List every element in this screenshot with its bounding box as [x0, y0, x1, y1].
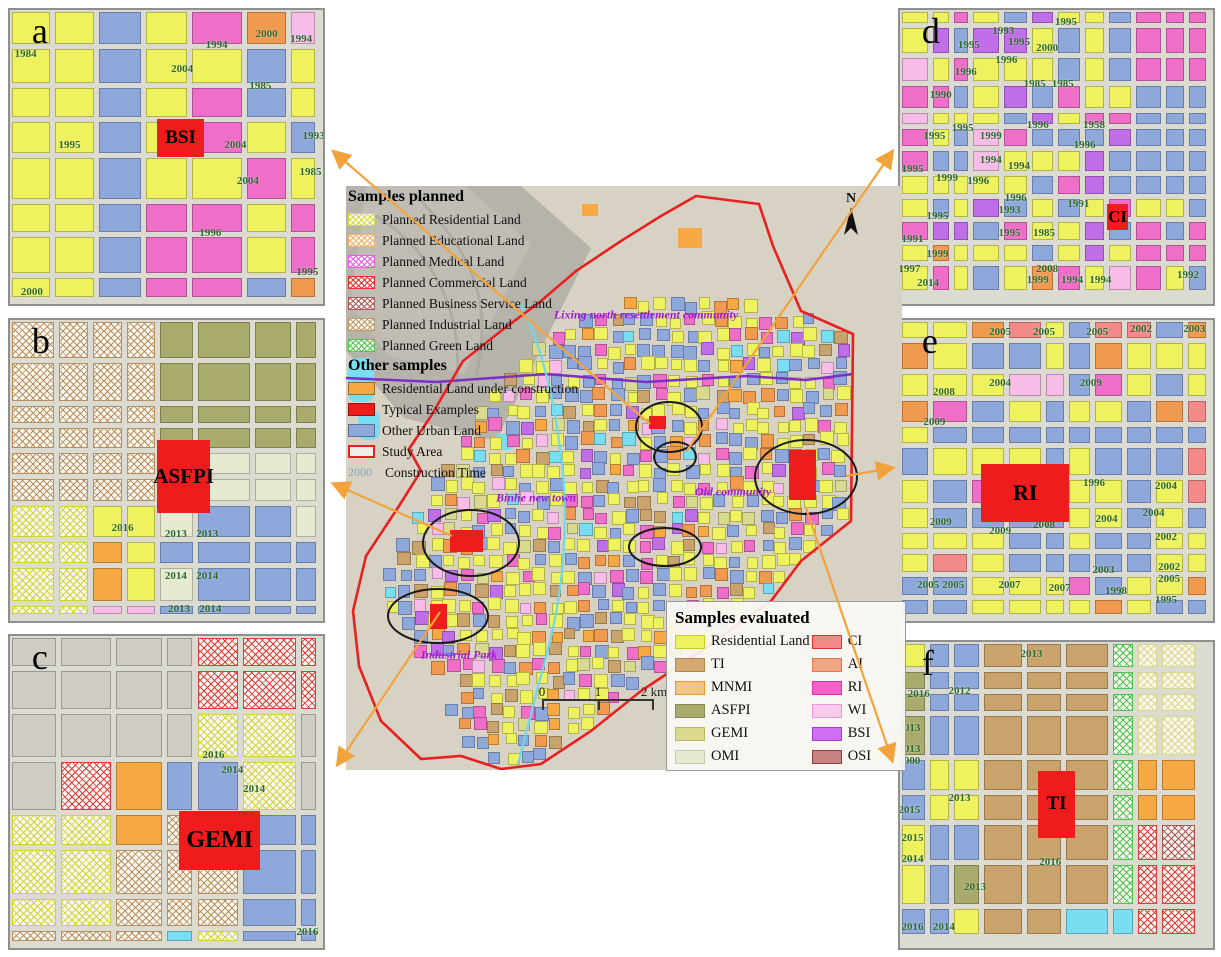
panel-letter: e	[922, 323, 938, 359]
construction-year-label: 2005	[917, 579, 939, 591]
land-parcel	[99, 122, 141, 152]
land-parcel	[1095, 427, 1122, 443]
land-parcel	[1138, 694, 1157, 711]
land-parcel	[12, 237, 50, 273]
construction-year-label: 1996	[1005, 192, 1027, 204]
highlight-ellipse	[629, 528, 701, 566]
land-parcel	[1166, 58, 1183, 81]
land-parcel	[1009, 343, 1041, 369]
land-parcel	[933, 222, 949, 240]
land-parcel	[127, 406, 155, 423]
land-parcel	[902, 58, 928, 81]
land-parcel	[99, 12, 141, 44]
construction-year-label: 2004	[237, 175, 259, 187]
land-parcel	[192, 49, 242, 83]
land-parcel	[1027, 909, 1061, 934]
land-parcel	[99, 88, 141, 118]
construction-year-label: 1994	[980, 154, 1002, 166]
construction-year-label: 2016	[296, 926, 318, 938]
land-parcel	[167, 638, 193, 666]
land-parcel	[1136, 199, 1161, 217]
land-parcel	[902, 374, 928, 396]
land-parcel	[99, 49, 141, 83]
land-parcel	[1138, 644, 1157, 667]
land-parcel	[1189, 28, 1206, 53]
land-parcel	[99, 158, 141, 199]
construction-year-label: 1994	[290, 33, 312, 45]
land-parcel	[12, 506, 54, 537]
land-parcel	[1166, 129, 1183, 146]
land-parcel	[1113, 694, 1133, 711]
construction-year-label: 2014	[917, 277, 939, 289]
legend-label: OMI	[711, 748, 739, 765]
land-parcel	[198, 638, 238, 666]
land-parcel	[1162, 760, 1195, 790]
land-parcel	[1156, 322, 1183, 338]
land-parcel	[902, 480, 928, 503]
land-parcel	[1069, 401, 1090, 422]
north-arrow: N	[838, 192, 864, 243]
typical-example-marker: TI	[1038, 771, 1076, 838]
land-parcel	[1032, 12, 1053, 23]
construction-year-label: 1995	[952, 122, 974, 134]
land-parcel	[972, 427, 1003, 443]
construction-year-label: 2013	[964, 881, 986, 893]
land-parcel	[61, 815, 111, 845]
land-parcel	[1138, 825, 1157, 861]
detail-panel-d: 1995199319951995200019961996198519851990…	[898, 8, 1215, 306]
land-parcel	[954, 909, 979, 934]
land-parcel	[198, 406, 250, 423]
legend-swatch	[675, 681, 705, 695]
construction-year-label: 2004	[1096, 513, 1118, 525]
legend-item: Planned Residential Land	[348, 209, 608, 230]
legend-swatch	[348, 255, 375, 268]
construction-year-label: 2003	[1092, 564, 1114, 576]
land-parcel	[1046, 427, 1064, 443]
land-parcel	[1109, 176, 1132, 194]
legend-label: Study Area	[382, 444, 442, 460]
construction-year-label: 1985	[299, 166, 321, 178]
land-parcel	[1004, 113, 1027, 124]
land-parcel	[1136, 58, 1161, 81]
land-parcel	[1189, 199, 1206, 217]
legend-swatch	[812, 658, 842, 672]
scale-tick-label: 2 km	[641, 684, 667, 700]
land-parcel	[127, 428, 155, 448]
land-parcel	[1162, 644, 1195, 667]
land-parcel	[55, 12, 94, 44]
land-parcel	[198, 363, 250, 401]
land-parcel	[1136, 151, 1161, 171]
typical-example-label: ASFPI	[153, 464, 214, 489]
land-parcel	[93, 568, 122, 600]
scale-bar: 012 km	[542, 684, 654, 711]
construction-year-label: 2013	[1020, 648, 1042, 660]
land-parcel	[902, 199, 928, 217]
land-parcel	[59, 542, 88, 563]
land-parcel	[127, 453, 155, 474]
land-parcel	[1113, 716, 1133, 754]
construction-year-label: 1999	[980, 130, 1002, 142]
legend-label: Planned Business Service Land	[382, 296, 552, 312]
land-parcel	[127, 542, 155, 563]
land-parcel	[1085, 245, 1104, 261]
land-parcel	[933, 58, 949, 81]
scale-labels: 012 km	[542, 684, 654, 699]
construction-year-label: 2004	[171, 63, 193, 75]
land-parcel	[1095, 600, 1122, 614]
land-parcel	[1109, 12, 1132, 23]
land-parcel	[12, 363, 54, 401]
land-parcel	[1113, 909, 1133, 934]
land-parcel	[1027, 716, 1061, 754]
construction-year-label: 2012	[948, 685, 970, 697]
construction-year-label: 2013	[196, 528, 218, 540]
land-parcel	[59, 506, 88, 537]
land-parcel	[1046, 554, 1064, 572]
land-parcel	[1189, 58, 1206, 81]
legend-item: BSI	[812, 722, 897, 745]
land-parcel	[12, 542, 54, 563]
legend-planned-items: Planned Residential LandPlanned Educatio…	[348, 209, 608, 356]
construction-year-label: 1992	[1177, 269, 1199, 281]
legend-label: AI	[848, 656, 863, 673]
land-parcel	[1188, 448, 1206, 475]
land-parcel	[116, 815, 162, 845]
panel-letter: c	[32, 639, 48, 675]
land-parcel	[93, 428, 122, 448]
construction-year-label: 2014	[221, 764, 243, 776]
land-parcel	[1069, 554, 1090, 572]
land-parcel	[1009, 554, 1041, 572]
construction-year-label: 2009	[989, 525, 1011, 537]
land-parcel	[984, 825, 1022, 861]
land-parcel	[255, 506, 291, 537]
land-parcel	[296, 453, 316, 474]
land-parcel	[291, 158, 315, 199]
land-parcel	[59, 428, 88, 448]
land-parcel	[93, 542, 122, 563]
land-parcel	[902, 245, 928, 261]
land-parcel	[1058, 176, 1079, 194]
construction-year-label: 2014	[196, 570, 218, 582]
land-parcel	[1085, 86, 1104, 109]
legend-swatch	[812, 750, 842, 764]
legend-other-title: Other samples	[348, 357, 608, 375]
land-parcel	[933, 343, 967, 369]
land-parcel	[1156, 343, 1183, 369]
land-parcel	[247, 49, 286, 83]
land-parcel	[1188, 600, 1206, 614]
construction-year-label: 1994	[1008, 160, 1030, 172]
land-parcel	[1095, 401, 1122, 422]
north-arrow-icon	[841, 206, 861, 238]
construction-year-label: 2005	[1033, 326, 1055, 338]
construction-year-label: 2013	[168, 603, 190, 615]
land-parcel	[1166, 86, 1183, 109]
land-parcel	[291, 88, 315, 118]
land-parcel	[1162, 672, 1195, 689]
land-parcel	[12, 815, 56, 845]
construction-year-label: 1995	[1155, 594, 1177, 606]
land-parcel	[12, 931, 56, 941]
land-parcel	[12, 714, 56, 757]
legend-swatch	[348, 318, 375, 331]
land-parcel	[1058, 222, 1079, 240]
panel-letter: b	[32, 323, 50, 359]
land-parcel	[933, 151, 949, 171]
detail-panel-a: 1984200019941994200419851995200419931985…	[8, 8, 325, 306]
land-parcel	[1188, 480, 1206, 503]
land-parcel	[61, 714, 111, 757]
legend-planned-title: Samples planned	[348, 188, 608, 206]
land-parcel	[55, 204, 94, 233]
land-parcel	[1066, 909, 1107, 934]
construction-year-label: 2005	[1086, 326, 1108, 338]
land-parcel	[296, 406, 316, 423]
land-parcel	[1069, 577, 1090, 594]
land-parcel	[930, 825, 949, 861]
land-parcel	[1004, 245, 1027, 261]
land-parcel	[954, 245, 968, 261]
land-parcel	[160, 406, 193, 423]
land-parcel	[1156, 374, 1183, 396]
construction-year-label: 2000	[21, 286, 43, 298]
legend-item: Other Urban Land	[348, 420, 608, 441]
land-parcel	[984, 760, 1022, 790]
land-parcel	[55, 49, 94, 83]
legend-swatch	[812, 704, 842, 718]
land-parcel	[1127, 600, 1151, 614]
land-parcel	[198, 322, 250, 358]
legend-item: Residential Land under construction	[348, 378, 608, 399]
land-parcel	[296, 428, 316, 448]
land-parcel	[296, 542, 316, 563]
land-parcel	[1069, 533, 1090, 549]
land-parcel	[1166, 151, 1183, 171]
land-parcel	[1009, 427, 1041, 443]
land-parcel	[1127, 577, 1151, 594]
land-parcel	[301, 762, 316, 810]
construction-year-label: 1996	[1027, 119, 1049, 131]
land-parcel	[1058, 28, 1079, 53]
land-parcel	[116, 714, 162, 757]
detail-panel-e: 2005200520052002200320082004200920091996…	[898, 318, 1215, 623]
legend-item: ASFPI	[675, 699, 812, 722]
land-parcel	[1188, 577, 1206, 594]
land-parcel	[1113, 865, 1133, 904]
legend-swatch	[675, 704, 705, 718]
construction-year-label: 1995	[927, 210, 949, 222]
land-parcel	[301, 714, 316, 757]
land-parcel	[1136, 222, 1161, 240]
legend-item: Planned Green Land	[348, 335, 608, 356]
land-parcel	[12, 204, 50, 233]
land-parcel	[296, 479, 316, 501]
land-parcel	[902, 86, 928, 109]
land-parcel	[973, 266, 999, 290]
panel-letter: a	[32, 13, 48, 49]
construction-year-label: 2007	[999, 579, 1021, 591]
land-parcel	[954, 151, 968, 171]
land-parcel	[954, 266, 968, 290]
legend-samples-evaluated: Samples evaluated Residential LandTIMNMI…	[666, 601, 906, 771]
land-parcel	[55, 237, 94, 273]
land-parcel	[301, 815, 316, 845]
land-parcel	[99, 278, 141, 297]
land-parcel	[116, 899, 162, 926]
construction-year-label: 2016	[902, 921, 924, 933]
construction-year-label: 1985	[1052, 78, 1074, 90]
land-parcel	[1166, 199, 1183, 217]
land-parcel	[12, 568, 54, 600]
legend-label: TI	[711, 656, 725, 673]
land-parcel	[255, 453, 291, 474]
land-parcel	[1136, 12, 1161, 23]
land-parcel	[243, 638, 296, 666]
land-parcel	[12, 606, 54, 614]
land-parcel	[93, 406, 122, 423]
construction-year-label: 2003	[1183, 323, 1205, 335]
legend-item: Residential Land	[675, 630, 812, 653]
construction-year-label: 1995	[923, 130, 945, 142]
land-parcel	[301, 850, 316, 894]
typical-example-label: RI	[1013, 480, 1037, 506]
land-parcel	[301, 638, 316, 666]
construction-year-label: 2004	[989, 377, 1011, 389]
construction-year-label: 2014	[243, 783, 265, 795]
land-parcel	[1085, 12, 1104, 23]
land-parcel	[902, 113, 928, 124]
legend-label: Construction Time	[385, 465, 486, 481]
typical-example-marker: BSI	[157, 119, 204, 157]
land-parcel	[1085, 176, 1104, 194]
legend-item: Planned Educational Land	[348, 230, 608, 251]
land-parcel	[1004, 266, 1027, 290]
scale-tick-label: 1	[595, 684, 602, 700]
land-parcel	[116, 850, 162, 894]
typical-example-marker: CI	[1107, 204, 1129, 230]
region-label: Industrial Park	[421, 648, 497, 663]
legend-swatch	[348, 276, 375, 289]
land-parcel	[243, 714, 296, 757]
land-parcel	[61, 850, 111, 894]
legend-swatch	[812, 635, 842, 649]
legend-item: Planned Industrial Land	[348, 314, 608, 335]
land-parcel	[1189, 113, 1206, 124]
land-parcel	[55, 88, 94, 118]
land-parcel	[247, 122, 286, 152]
land-parcel	[902, 865, 925, 904]
land-parcel	[1136, 176, 1161, 194]
detail-panel-c: 2016201420142016GEMIc	[8, 634, 325, 950]
legend-label: Planned Residential Land	[382, 212, 521, 228]
legend-item: WI	[812, 699, 897, 722]
land-parcel	[146, 204, 187, 233]
construction-year-label: 1997	[898, 263, 920, 275]
land-parcel	[1032, 151, 1053, 171]
land-parcel	[1095, 533, 1122, 549]
land-parcel	[1113, 795, 1133, 820]
land-parcel	[1166, 113, 1183, 124]
legend-label: Residential Land	[711, 633, 810, 650]
scale-tick-label: 0	[539, 684, 546, 700]
land-parcel	[973, 199, 999, 217]
construction-year-label: 2015	[902, 832, 924, 844]
land-parcel	[127, 322, 155, 358]
land-parcel	[1109, 58, 1132, 81]
land-parcel	[1095, 448, 1122, 475]
land-parcel	[116, 762, 162, 810]
land-parcel	[984, 795, 1022, 820]
land-parcel	[1066, 865, 1107, 904]
land-parcel	[972, 343, 1003, 369]
land-parcel	[146, 237, 187, 273]
legend-swatch: 2000	[348, 466, 378, 479]
construction-year-label: 1999	[936, 172, 958, 184]
land-parcel	[93, 363, 122, 401]
land-parcel	[933, 448, 967, 475]
legend-swatch	[675, 750, 705, 764]
land-parcel	[1127, 533, 1151, 549]
land-parcel	[973, 245, 999, 261]
construction-year-label: 2005	[942, 579, 964, 591]
land-parcel	[1156, 448, 1183, 475]
construction-year-label: 2005	[1158, 573, 1180, 585]
land-parcel	[12, 453, 54, 474]
land-parcel	[1188, 508, 1206, 528]
land-parcel	[1027, 672, 1061, 689]
land-parcel	[973, 12, 999, 23]
land-parcel	[954, 12, 968, 23]
land-parcel	[1189, 151, 1206, 171]
land-parcel	[301, 899, 316, 926]
land-parcel	[59, 453, 88, 474]
land-parcel	[255, 606, 291, 614]
construction-year-label: 1995	[58, 139, 80, 151]
construction-year-label: 2015	[898, 804, 920, 816]
land-parcel	[1162, 909, 1195, 934]
legend-item: Planned Medical Land	[348, 251, 608, 272]
land-parcel	[1127, 343, 1151, 369]
land-parcel	[984, 672, 1022, 689]
land-parcel	[1189, 222, 1206, 240]
legend-item: GEMI	[675, 722, 812, 745]
construction-year-label: 1999	[1027, 274, 1049, 286]
land-parcel	[1032, 199, 1053, 217]
land-parcel	[1066, 694, 1107, 711]
land-parcel	[1127, 374, 1151, 396]
land-parcel	[1069, 508, 1090, 528]
land-parcel	[1156, 401, 1183, 422]
land-parcel	[296, 606, 316, 614]
land-parcel	[1127, 480, 1151, 503]
land-parcel	[59, 363, 88, 401]
land-parcel	[167, 762, 193, 810]
typical-example-marker: GEMI	[179, 811, 260, 870]
land-parcel	[198, 931, 238, 941]
land-parcel	[1188, 554, 1206, 572]
land-parcel	[167, 899, 193, 926]
typical-example-label: CI	[1108, 207, 1127, 227]
land-parcel	[1069, 448, 1090, 475]
panel-letter: d	[922, 13, 940, 49]
land-parcel	[1188, 427, 1206, 443]
land-parcel	[1162, 865, 1195, 904]
land-parcel	[55, 278, 94, 297]
construction-year-label: 2009	[923, 416, 945, 428]
